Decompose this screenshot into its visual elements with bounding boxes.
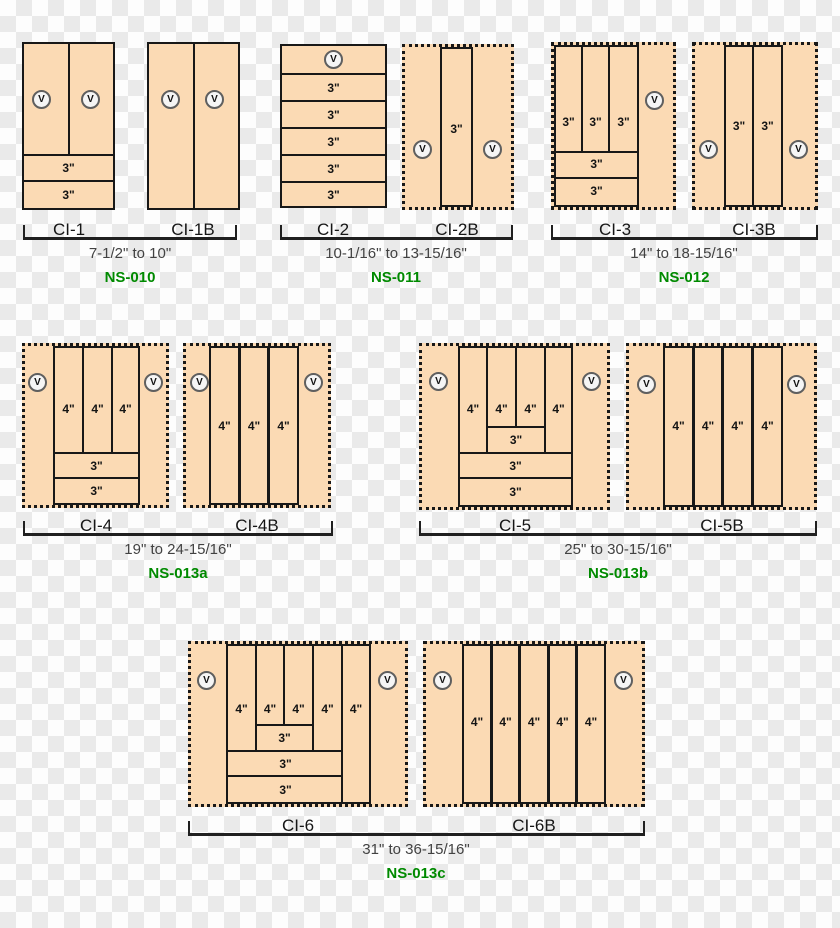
divider [68, 44, 70, 154]
v-marker-icon: V [378, 671, 397, 690]
dimension-label: 4" [665, 416, 692, 436]
variant-label: CI-4 [80, 516, 112, 536]
dimension-label: 3" [556, 153, 637, 175]
size-range-label: 10-1/16" to 13-15/16" [325, 245, 467, 262]
diagram-ci-1: 3" 3" V V [22, 42, 115, 210]
v-marker-icon: V [433, 671, 452, 690]
v-marker-icon: V [614, 671, 633, 690]
variant-label: CI-3B [732, 220, 775, 240]
dimension-label: 4" [546, 398, 571, 420]
dimension-label: 4" [460, 398, 486, 420]
dimension-label: 4" [84, 398, 111, 420]
dimension-label: 4" [493, 712, 518, 732]
diagram-ci-4: 4" 4" 4" 3" 3" V V [22, 343, 169, 508]
dimension-label: 3" [228, 777, 343, 802]
variant-label: CI-2B [435, 220, 478, 240]
product-code: NS-013a [148, 565, 207, 582]
fixed-tray-block: 4" 4" 4" 4" 4" [462, 644, 606, 804]
v-marker-icon: V [28, 373, 47, 392]
diagram-ci-4b: 4" 4" 4" V V [183, 343, 331, 508]
dimension-label: 4" [488, 398, 515, 420]
dimension-label: 4" [754, 416, 781, 436]
size-bracket [419, 521, 817, 536]
diagram-ci-1b: V V [147, 42, 240, 210]
diagram-ci-6b: 4" 4" 4" 4" 4" V V [423, 641, 645, 807]
dimension-label: 4" [343, 698, 369, 720]
v-marker-icon: V [789, 140, 808, 159]
divider [581, 47, 583, 151]
fixed-tray-block: 4" 4" 4" 4" 4" 3" 3" 3" [226, 644, 371, 804]
v-marker-icon: V [787, 375, 806, 394]
dimension-label: 4" [550, 712, 575, 732]
v-marker-icon: V [190, 373, 209, 392]
divider [608, 47, 610, 151]
dimension-label: 4" [695, 416, 721, 436]
dimension-label: 3" [442, 119, 471, 139]
dimension-label: 3" [460, 479, 571, 505]
fixed-tray-block: 4" 4" 4" 4" [663, 346, 783, 507]
product-code: NS-013b [588, 565, 648, 582]
v-marker-icon: V [637, 375, 656, 394]
fixed-tray-block: 3" 3" [724, 45, 783, 207]
product-code: NS-012 [659, 269, 710, 286]
v-marker-icon: V [699, 140, 718, 159]
variant-label: CI-1B [171, 220, 214, 240]
v-marker-icon: V [81, 90, 100, 109]
product-code: NS-013c [386, 865, 445, 882]
variant-label: CI-5B [700, 516, 743, 536]
dimension-label: 3" [754, 116, 781, 136]
dimension-label: 4" [270, 416, 297, 436]
dimension-label: 3" [556, 111, 581, 133]
fixed-tray-block: 3" 3" 3" 3" 3" [554, 45, 639, 207]
dimension-label: 4" [211, 416, 238, 436]
diagram-ci-6: 4" 4" 4" 4" 4" 3" 3" 3" V V [188, 641, 408, 807]
dimension-label: 4" [517, 398, 544, 420]
dimension-label: 3" [282, 183, 385, 206]
dimension-label: 4" [464, 712, 490, 732]
v-marker-icon: V [324, 50, 343, 69]
dimension-label: 3" [55, 479, 138, 503]
diagram-ci-5b: 4" 4" 4" 4" V V [626, 343, 817, 510]
variant-label: CI-4B [235, 516, 278, 536]
dimension-label: 4" [113, 398, 138, 420]
diagram-ci-3b: 3" 3" V V [692, 42, 818, 210]
dimension-label: 4" [55, 398, 82, 420]
variant-label: CI-2 [317, 220, 349, 240]
fixed-tray-block: 3" [440, 47, 473, 207]
dimension-label: 3" [610, 111, 637, 133]
dimension-label: 3" [460, 454, 571, 477]
variant-label: CI-6 [282, 816, 314, 836]
dimension-label: 4" [521, 712, 547, 732]
v-marker-icon: V [429, 372, 448, 391]
dimension-label: 4" [314, 698, 341, 720]
dimension-label: 3" [726, 116, 752, 136]
product-code: NS-011 [371, 269, 421, 286]
dimension-label: 4" [578, 712, 604, 732]
drawer-insert-size-chart: 3" 3" V V V V CI-1 CI-1B 7-1/2" to 10" N… [0, 0, 840, 928]
dimension-label: 3" [228, 752, 343, 775]
dimension-label: 3" [282, 156, 385, 181]
dimension-label: 3" [255, 726, 314, 750]
fixed-tray-block: 4" 4" 4" [209, 346, 299, 505]
v-marker-icon: V [483, 140, 502, 159]
dimension-label: 4" [228, 698, 255, 720]
size-range-label: 19" to 24-15/16" [124, 541, 231, 558]
diagram-ci-5: 4" 4" 4" 4" 3" 3" 3" V V [419, 343, 610, 510]
dimension-label: 4" [241, 416, 267, 436]
dimension-label: 4" [285, 698, 312, 720]
v-marker-icon: V [582, 372, 601, 391]
dimension-label: 3" [24, 182, 113, 208]
size-range-label: 25" to 30-15/16" [564, 541, 671, 558]
v-marker-icon: V [304, 373, 323, 392]
v-marker-icon: V [413, 140, 432, 159]
size-bracket [188, 821, 645, 836]
v-marker-icon: V [32, 90, 51, 109]
v-marker-icon: V [144, 373, 163, 392]
dimension-label: 3" [282, 129, 385, 154]
dimension-label: 3" [24, 156, 113, 180]
fixed-tray-block: 4" 4" 4" 4" 3" 3" 3" [458, 346, 573, 507]
dimension-label: 3" [486, 428, 546, 452]
size-bracket [551, 225, 818, 240]
variant-label: CI-5 [499, 516, 531, 536]
diagram-ci-2b: 3" V V [402, 44, 514, 210]
dimension-label: 3" [583, 111, 608, 133]
product-code: NS-010 [105, 269, 156, 286]
variant-label: CI-6B [512, 816, 555, 836]
dimension-label: 4" [724, 416, 751, 436]
v-marker-icon: V [161, 90, 180, 109]
dimension-label: 3" [55, 454, 138, 477]
diagram-ci-2: V 3" 3" 3" 3" 3" [280, 44, 387, 208]
size-range-label: 31" to 36-15/16" [362, 841, 469, 858]
dimension-label: 3" [282, 102, 385, 127]
variant-label: CI-1 [53, 220, 85, 240]
variant-label: CI-3 [599, 220, 631, 240]
divider [193, 44, 195, 208]
v-marker-icon: V [205, 90, 224, 109]
v-marker-icon: V [197, 671, 216, 690]
v-marker-icon: V [645, 91, 664, 110]
diagram-ci-3: 3" 3" 3" 3" 3" V [551, 42, 676, 210]
dimension-label: 3" [556, 179, 637, 203]
size-range-label: 7-1/2" to 10" [89, 245, 171, 262]
size-range-label: 14" to 18-15/16" [630, 245, 737, 262]
dimension-label: 3" [282, 75, 385, 100]
fixed-tray-block: 4" 4" 4" 3" 3" [53, 346, 140, 505]
dimension-label: 4" [257, 698, 283, 720]
size-bracket [23, 521, 333, 536]
